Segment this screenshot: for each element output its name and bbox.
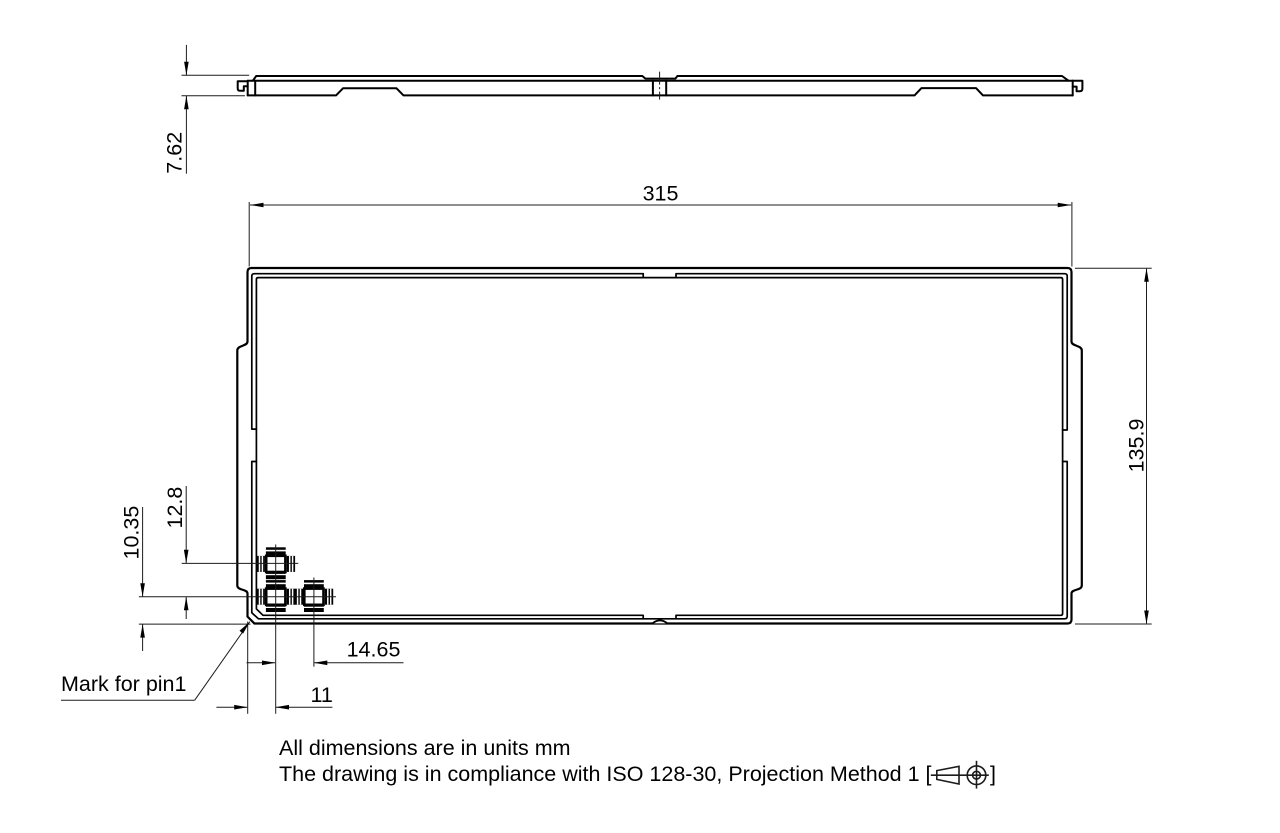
svg-text:135.9: 135.9 [1125,419,1149,473]
svg-text:315: 315 [643,182,679,206]
svg-text:11: 11 [311,683,333,707]
svg-text:10.35: 10.35 [119,506,143,560]
svg-text:7.62: 7.62 [162,132,186,174]
svg-text:All dimensions are in units mm: All dimensions are in units mm [279,736,571,760]
svg-text:12.8: 12.8 [163,487,187,529]
svg-text:The drawing is in compliance w: The drawing is in compliance with ISO 12… [279,762,932,786]
svg-text:Mark for pin1: Mark for pin1 [61,672,186,696]
svg-text:]: ] [990,762,996,786]
svg-text:14.65: 14.65 [347,638,401,662]
